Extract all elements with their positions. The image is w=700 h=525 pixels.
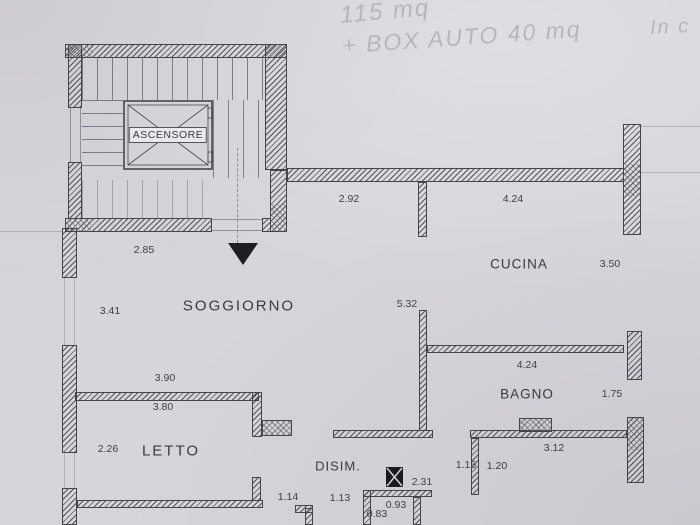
bath-right-wall: [627, 331, 642, 380]
left-wall-upper: [62, 228, 77, 278]
living-bath-divider-wall: [419, 310, 427, 431]
stair-treads-right: [213, 100, 265, 178]
stair-left-wall-upper: [68, 44, 82, 108]
bedroom-window-line-outer: [64, 453, 65, 488]
stair-top-wall: [65, 44, 287, 58]
dim-hall-top-left: 2.92: [339, 193, 359, 205]
stair-window-line-inner: [80, 108, 81, 162]
living-window-line-inner: [74, 278, 75, 345]
kitchen-right-wall-crosshatch: [624, 164, 640, 196]
entrance-axis-line: [237, 148, 238, 243]
floorplan-photo: 115 mq + BOX AUTO 40 mq In c ASCENSORE: [0, 0, 700, 525]
bedroom-right-wall-stub: [252, 477, 261, 501]
shaft-symbol-icon: [386, 467, 403, 487]
hall-top-wall-left: [333, 430, 433, 438]
hallway-label: DISIM.: [315, 459, 361, 474]
bedroom-window-line-inner: [74, 453, 75, 488]
dim-stair-bottom: 2.85: [134, 244, 154, 256]
handwritten-area-note: 115 mq: [339, 0, 431, 30]
stair-left-wall-lower: [68, 162, 82, 219]
bath-top-wall: [427, 345, 624, 353]
bathroom-label: BAGNO: [500, 387, 554, 402]
elevator-label: ASCENSORE: [129, 127, 207, 143]
stair-right-wall-upper: [265, 44, 287, 170]
dim-hall-door-left: 1.14: [278, 491, 298, 503]
bedroom-bottom-wall: [77, 500, 263, 508]
dim-shaft: 2.31: [412, 476, 432, 488]
elevator-shaft: ASCENSORE: [123, 100, 213, 170]
faint-line-left: [0, 231, 62, 232]
dim-jamb-right: 1.20: [487, 460, 507, 472]
living-window-line-outer: [64, 278, 65, 345]
entrance-arrow-icon: [228, 243, 258, 266]
bedroom-top-wall: [75, 392, 259, 401]
left-wall-lower: [62, 488, 77, 525]
kitchen-label: CUCINA: [490, 257, 548, 272]
dim-bed-top-lower: 3.80: [153, 401, 173, 413]
closet-top-wall: [363, 490, 432, 497]
dim-jamb-left: 1.15: [456, 459, 476, 471]
dim-kitchen-width: 3.50: [600, 258, 620, 270]
hall-door-block: [519, 418, 552, 432]
bedroom-door-block: [262, 420, 292, 436]
faint-line-right-lower: [641, 172, 700, 173]
dim-closet-left: 0.83: [367, 508, 387, 520]
faint-line-right-upper: [641, 126, 700, 127]
hall-step-wall-v: [305, 508, 313, 525]
dim-bed-left: 2.26: [98, 443, 118, 455]
living-kitchen-divider-stub: [418, 182, 427, 237]
dim-bed-top-upper: 3.90: [155, 372, 175, 384]
stair-treads-bottom: [82, 180, 213, 218]
dim-closet-top: 0.93: [386, 499, 406, 511]
handwritten-corner-note: In c: [649, 15, 690, 40]
living-room-label: SOGGIORNO: [183, 298, 295, 315]
dim-bath-right: 1.75: [602, 388, 622, 400]
stair-window-line-outer: [70, 108, 71, 162]
closet-right-wall: [413, 497, 421, 525]
dim-bath-top: 4.24: [517, 359, 537, 371]
stair-right-wall-crosshatch: [271, 204, 286, 231]
stair-treads-top: [82, 58, 265, 100]
dim-living-bath-wall: 5.32: [397, 298, 417, 310]
dim-kitchen-top: 4.24: [503, 193, 523, 205]
lower-right-wall-crosshatch: [628, 418, 643, 450]
dim-hall-door-mid: 1.13: [330, 492, 350, 504]
stair-treads-left: [82, 100, 123, 178]
dim-hall-top-right: 3.12: [544, 442, 564, 454]
dim-living-left: 3.41: [100, 305, 120, 317]
bedroom-label: LETTO: [142, 443, 200, 460]
kitchen-top-wall: [287, 168, 624, 182]
bedroom-right-wall: [252, 392, 262, 437]
